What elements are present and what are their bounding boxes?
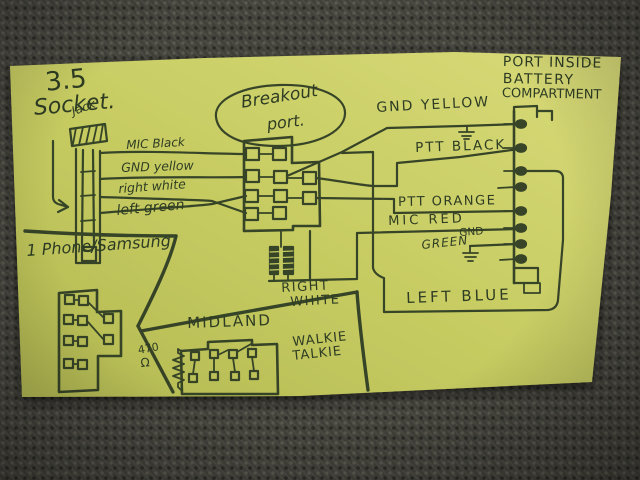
conn-label-ptt-black: PTT BLACK — [415, 139, 506, 156]
conn-label-ptt-orange: PTT ORANGE — [398, 194, 496, 209]
conn-label-mic-red: MIC RED — [388, 212, 465, 228]
radio-brand-label: MIDLAND — [187, 313, 272, 331]
battery-port-title-line2: BATTERY — [503, 72, 575, 87]
wire-label-left-green: left green — [116, 198, 185, 218]
breakout-title-line1: Breakout — [240, 83, 319, 112]
conn-label-gnd-yellow: GND YELLOW — [376, 95, 490, 115]
wire-label-mic-black: MIC Black — [126, 136, 185, 151]
conn-label-green: GREEN — [421, 234, 469, 251]
conn-label-white: WHITE — [290, 293, 341, 309]
resistor-unit-label: Ω — [140, 356, 150, 369]
breakout-title-line2: port. — [266, 112, 306, 132]
photo-of-wiring-note: 3.5 Socket. Jack MIC Black GND yellow ri… — [0, 0, 640, 480]
radio-device-line2: TALKIE — [292, 345, 343, 363]
phone-label: 1 Phone/Samsung — [26, 233, 171, 259]
battery-port-title-line1: PORT INSIDE — [503, 55, 603, 71]
conn-label-left-blue: LEFT BLUE — [406, 287, 512, 306]
battery-port-title-line3: COMPARTMENT — [502, 87, 602, 102]
handwritten-labels: 3.5 Socket. Jack MIC Black GND yellow ri… — [0, 0, 640, 480]
wire-label-gnd-yellow: GND yellow — [121, 159, 194, 174]
wire-label-right-white: right white — [118, 178, 186, 195]
resistor-value-label: 470 — [137, 341, 160, 355]
